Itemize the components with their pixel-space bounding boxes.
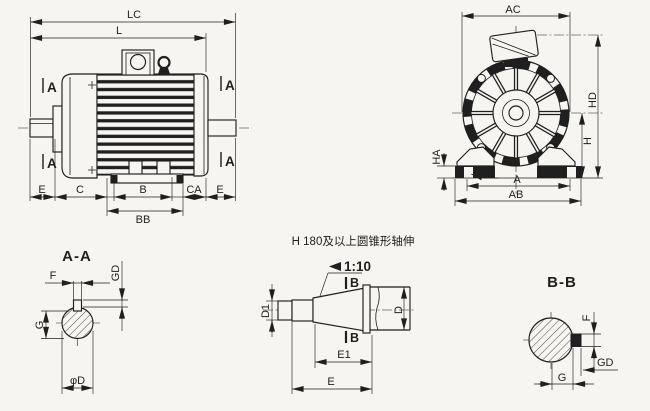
dim-label-ca: CA xyxy=(186,184,202,196)
eyebolt-icon xyxy=(159,57,170,68)
motor-dimension-drawing-page: A A A A LC L E C B CA E BB xyxy=(0,0,650,411)
taper-symbol-icon xyxy=(329,262,341,271)
dim-label-e-front: E xyxy=(38,184,45,196)
dim-label-d1: D1 xyxy=(260,304,272,318)
section-marker-b-bottom: B xyxy=(350,331,359,345)
technical-drawing: A A A A LC L E C B CA E BB xyxy=(0,0,650,411)
taper-ratio: 1:10 xyxy=(344,259,371,274)
section-marker-b-top: B xyxy=(350,276,359,290)
dim-label-f-bb: F xyxy=(581,314,593,321)
dim-label-l: L xyxy=(116,25,122,37)
dim-label-b: B xyxy=(139,184,146,196)
side-view: A A A A LC L E C B CA E BB xyxy=(18,9,252,226)
section-a-a: A-A F GD G φD xyxy=(34,248,128,394)
dim-label-e-rear: E xyxy=(216,184,223,196)
dim-label-e-taper: E xyxy=(327,376,334,388)
dim-label-ha: HA xyxy=(431,149,443,165)
dim-label-d: D xyxy=(393,306,405,314)
section-b-b: B-B F GD G xyxy=(523,274,618,390)
rim-bolt-icon xyxy=(547,74,555,82)
section-bb-title: B-B xyxy=(547,274,577,291)
dim-label-gd-aa: GD xyxy=(110,265,122,282)
taper-shaft-view: H 180及以上圆锥形轴伸 1:10 B B D1 D E1 xyxy=(260,234,416,394)
break-line xyxy=(376,287,380,330)
dim-label-k: K xyxy=(486,166,494,178)
dim-label-c: C xyxy=(76,184,84,196)
section-marker-a-bottom-right: A xyxy=(225,154,235,169)
section-marker-a-bottom-left: A xyxy=(47,156,57,171)
dim-label-gd-bb: GD xyxy=(597,357,614,369)
dim-label-hd: HD xyxy=(587,92,599,108)
section-marker-a-top-right: A xyxy=(225,78,235,93)
taper-note: H 180及以上圆锥形轴伸 xyxy=(292,234,415,248)
section-marker-a-top-left: A xyxy=(47,80,57,95)
dim-label-e1: E1 xyxy=(337,349,350,361)
dim-label-g-aa: G xyxy=(34,321,46,330)
dim-label-a: A xyxy=(513,174,521,186)
dim-label-ac: AC xyxy=(505,4,520,16)
section-aa-title: A-A xyxy=(62,248,92,265)
dim-label-phi-d: φD xyxy=(70,375,85,387)
rim-bolt-icon xyxy=(477,74,485,82)
terminal-box xyxy=(489,30,538,62)
end-view: AC HD H HA K A AB xyxy=(431,4,603,206)
dim-label-bb: BB xyxy=(136,214,151,226)
dim-label-g-bb: G xyxy=(558,372,567,384)
dim-label-ab: AB xyxy=(509,189,524,201)
dim-label-f-aa: F xyxy=(50,270,57,282)
dim-label-h: H xyxy=(582,137,594,145)
dim-label-lc: LC xyxy=(127,9,141,21)
